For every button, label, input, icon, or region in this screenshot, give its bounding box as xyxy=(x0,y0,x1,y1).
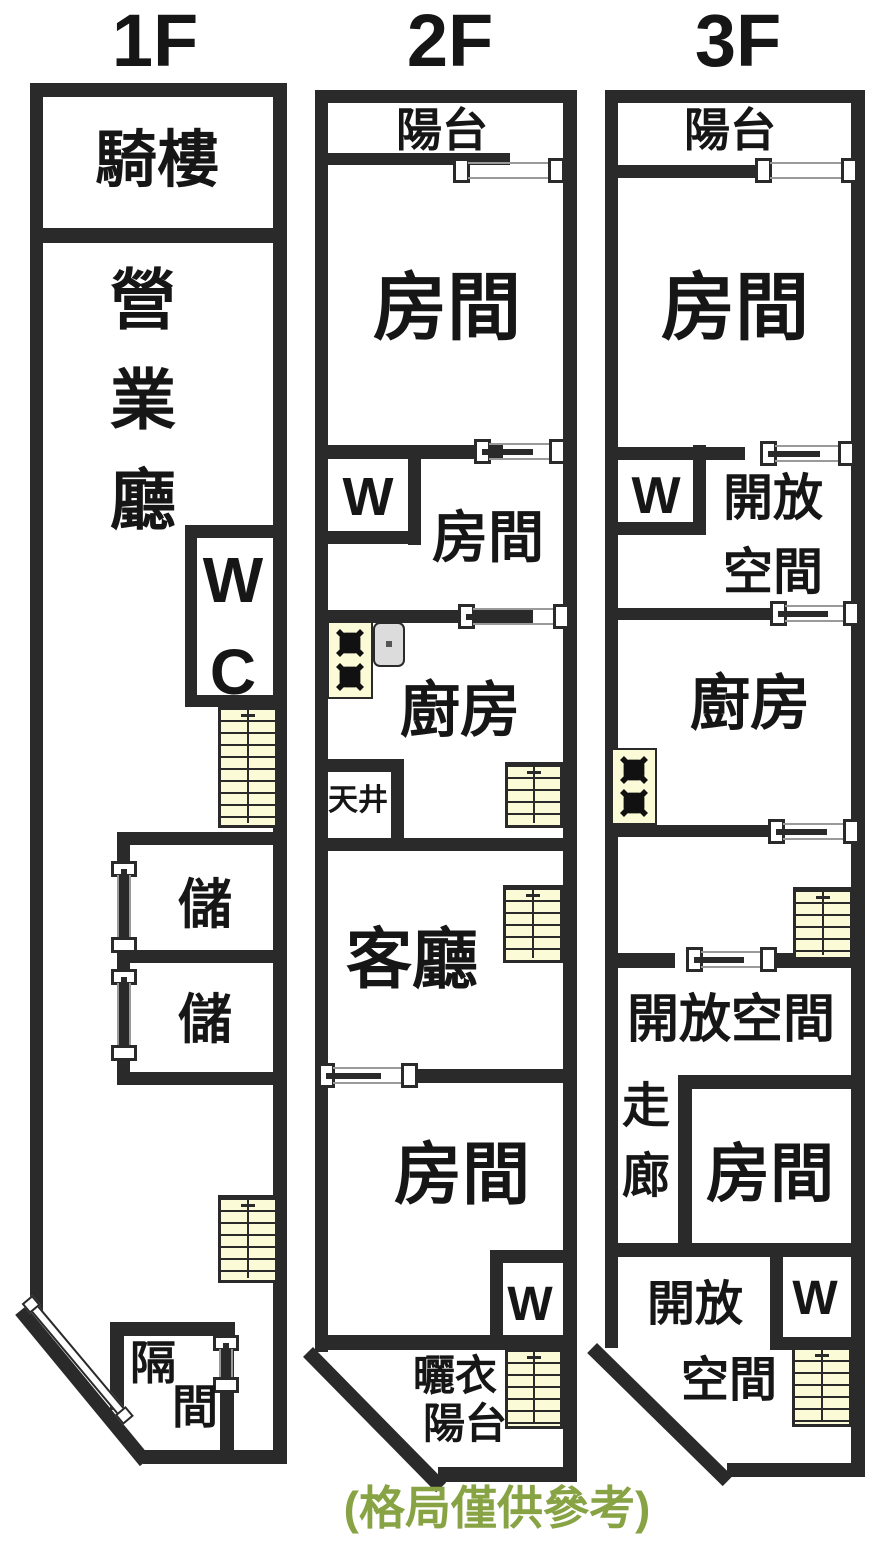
wall xyxy=(605,825,770,837)
stair-centerline xyxy=(822,892,824,955)
door-line xyxy=(783,838,845,840)
wall xyxy=(610,165,758,178)
door-line xyxy=(785,620,845,622)
room-label-open2: 開放空間 xyxy=(611,994,851,1046)
door-jamb xyxy=(843,819,860,844)
room-label-open3-line2: 空間 xyxy=(649,1357,809,1405)
sliding-door-symbol xyxy=(760,441,855,466)
door-panel xyxy=(768,451,820,457)
window-line xyxy=(770,177,843,179)
wall xyxy=(605,90,865,103)
sliding-door-symbol xyxy=(686,947,777,972)
room-label-open1-line2: 空間 xyxy=(693,547,853,597)
window-jamb xyxy=(841,158,858,183)
door-line xyxy=(775,460,840,462)
wall xyxy=(605,447,745,460)
door-panel xyxy=(778,611,828,617)
window-line xyxy=(770,162,843,164)
floorplan-canvas: 1F xyxy=(0,0,889,1548)
door-line xyxy=(785,605,845,607)
door-line xyxy=(701,951,762,953)
door-line xyxy=(783,823,845,825)
room-label-closet1: W xyxy=(626,470,686,522)
floorplan-3f: 3F xyxy=(0,0,889,1548)
wall xyxy=(605,1243,851,1257)
sliding-door-symbol xyxy=(770,601,860,626)
door-panel xyxy=(694,957,744,963)
room-label-balcony: 陽台 xyxy=(640,107,820,153)
stair-arrow xyxy=(815,1354,829,1357)
burner-icon xyxy=(618,754,650,786)
door-jamb xyxy=(838,441,855,466)
stair-arrow xyxy=(816,896,830,899)
wall xyxy=(605,953,675,968)
room-label-closet2: W xyxy=(790,1275,840,1323)
door-jamb xyxy=(760,947,777,972)
wall xyxy=(727,1463,865,1477)
wall xyxy=(678,1075,851,1089)
room-label-kitchen: 廚房 xyxy=(650,674,850,734)
sliding-door-symbol xyxy=(768,819,860,844)
room-label-room1: 房間 xyxy=(605,271,865,345)
door-jamb xyxy=(843,601,860,626)
wall xyxy=(605,608,777,620)
door-line xyxy=(701,966,762,968)
stair-centerline xyxy=(821,1350,823,1422)
floor-title-3f: 3F xyxy=(678,4,798,78)
room-label-open3-line1: 開放 xyxy=(615,1281,775,1329)
burner-icon xyxy=(618,787,650,819)
stove-icon xyxy=(611,748,657,825)
window-symbol xyxy=(755,158,858,183)
door-line xyxy=(775,445,840,447)
door-panel xyxy=(776,829,827,835)
room-label-open1-line1: 開放 xyxy=(693,473,853,523)
room-label-room2: 房間 xyxy=(650,1142,889,1206)
reference-note: (格局僅供參考) xyxy=(277,1485,717,1531)
staircase-icon xyxy=(793,887,853,960)
